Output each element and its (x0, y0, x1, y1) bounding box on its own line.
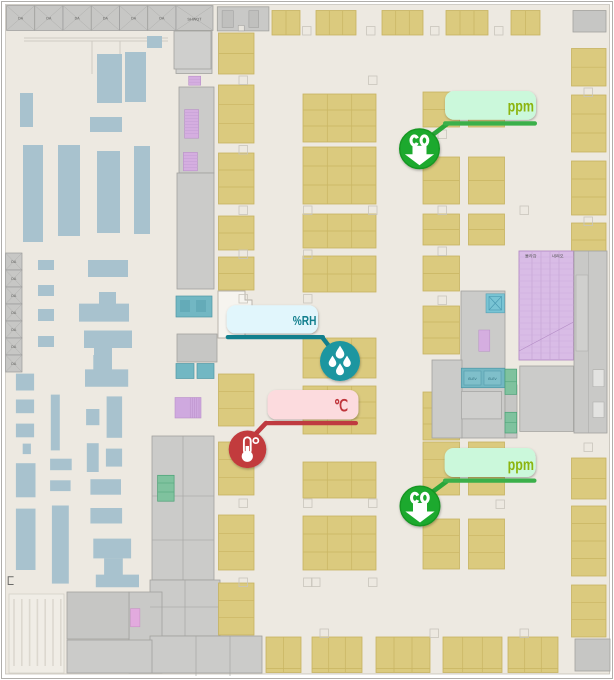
svg-text:SHWQT: SHWQT (187, 18, 202, 22)
svg-text:DA: DA (131, 16, 137, 20)
svg-text:DA: DA (159, 16, 165, 20)
svg-text:DA: DA (11, 260, 17, 264)
svg-text:DA: DA (103, 16, 109, 20)
svg-text:DA: DA (11, 294, 17, 298)
svg-text:ppm: ppm (508, 457, 534, 474)
svg-text:DA: DA (11, 345, 17, 349)
svg-text:ppm: ppm (508, 99, 534, 116)
svg-text:℃: ℃ (334, 398, 348, 415)
svg-text:%RH: %RH (293, 313, 317, 328)
svg-text:올라감: 올라감 (525, 254, 537, 259)
svg-text:DA: DA (11, 277, 17, 281)
svg-text:DA: DA (18, 16, 24, 20)
svg-text:내려오: 내려오 (552, 254, 564, 259)
svg-text:ELEV: ELEV (488, 377, 497, 381)
svg-text:DA: DA (11, 328, 17, 332)
svg-text:DA: DA (11, 311, 17, 315)
svg-text:ELEV: ELEV (468, 377, 477, 381)
svg-text:DA: DA (75, 16, 81, 20)
svg-text:DA: DA (11, 362, 17, 366)
svg-text:DA: DA (46, 16, 52, 20)
